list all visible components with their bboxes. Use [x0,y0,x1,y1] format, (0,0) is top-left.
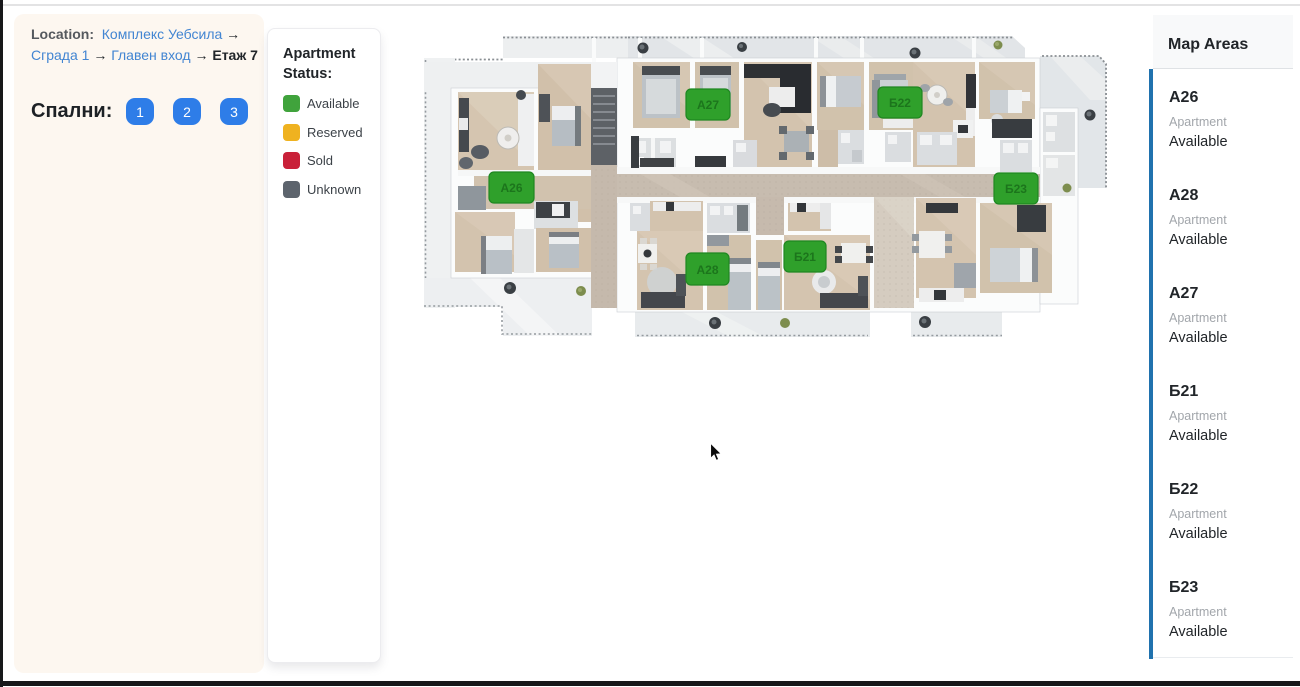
svg-text:Б22: Б22 [889,96,911,110]
svg-text:A28: A28 [696,263,718,277]
svg-text:Б23: Б23 [1005,182,1027,196]
svg-text:A26: A26 [500,181,522,195]
svg-text:Б21: Б21 [794,250,816,264]
svg-text:A27: A27 [697,98,719,112]
